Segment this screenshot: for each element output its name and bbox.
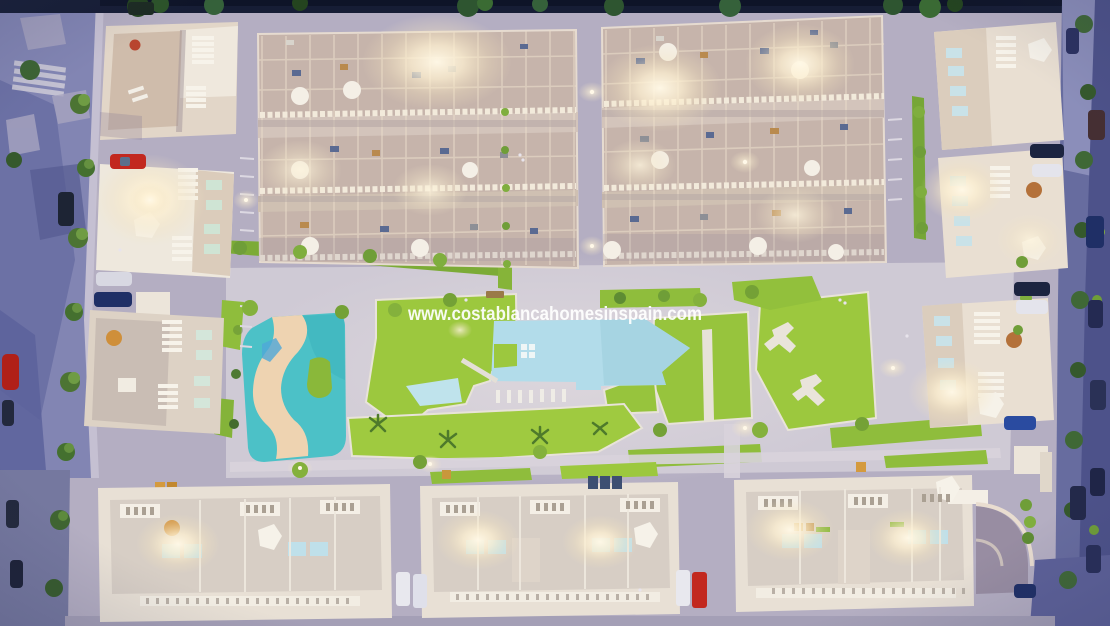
svg-text:www.costablancahomesinspain.co: www.costablancahomesinspain.com [407, 303, 702, 325]
